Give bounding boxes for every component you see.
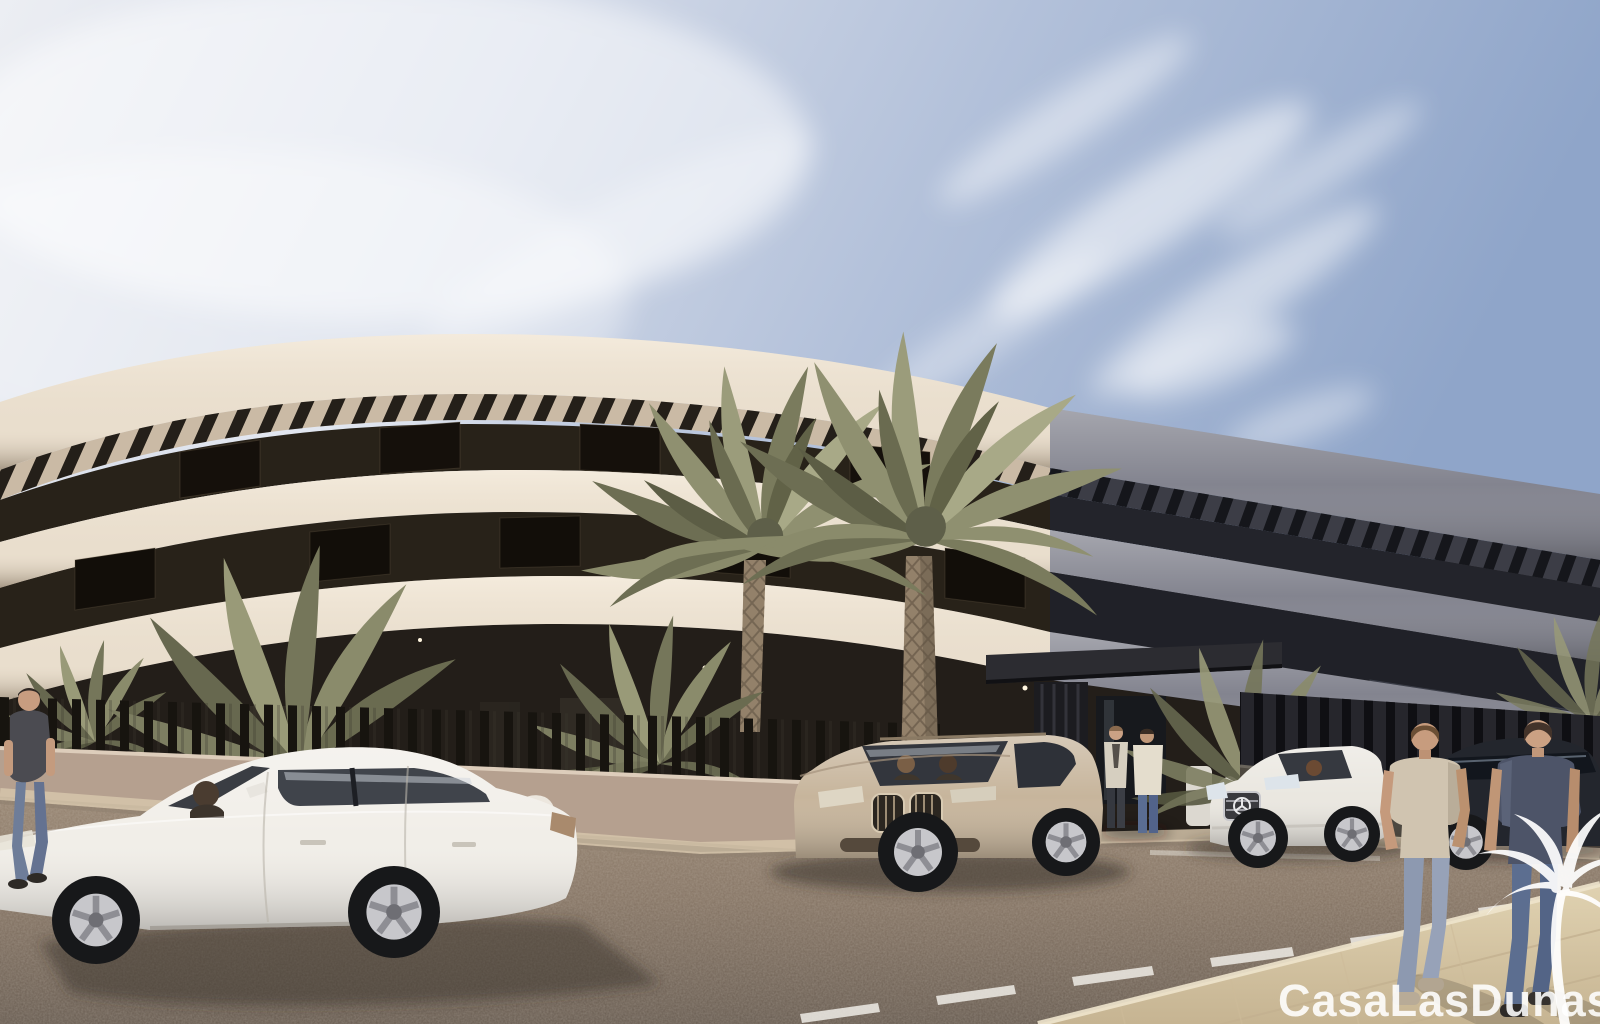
mercedes-driver <box>1306 760 1322 776</box>
sedan-driver <box>193 781 219 807</box>
suv-passenger <box>939 755 957 773</box>
render-canvas: TO <box>0 0 1600 1024</box>
render-scene: TO <box>0 0 1600 1024</box>
watermark-text: CasaLasDunas <box>1278 975 1600 1024</box>
